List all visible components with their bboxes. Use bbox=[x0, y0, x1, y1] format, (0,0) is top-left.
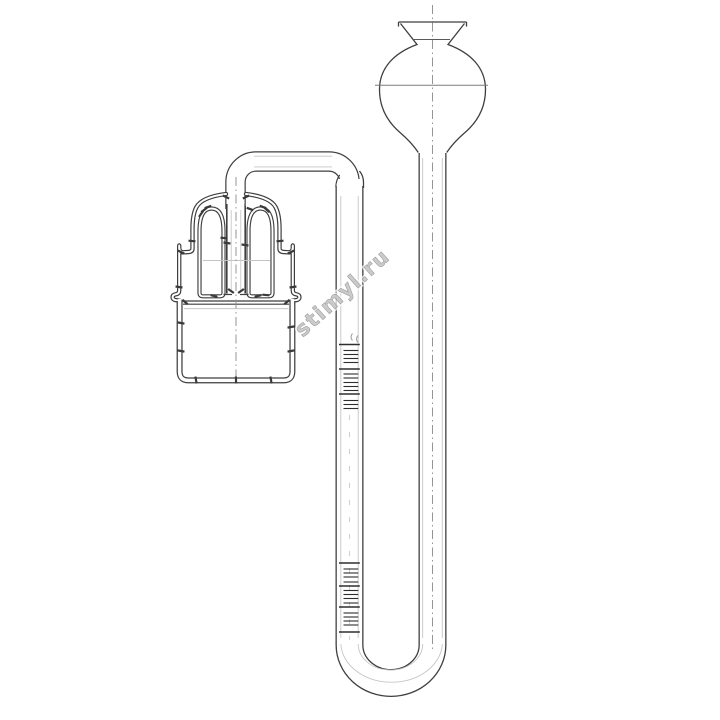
tick-mark bbox=[263, 295, 270, 296]
bulb-right-profile bbox=[447, 24, 486, 153]
tick-mark bbox=[189, 241, 196, 242]
bulb-left-profile bbox=[380, 24, 419, 153]
tick-mark bbox=[195, 377, 196, 384]
drawing-canvas: stimyl.ru stimyl.ru bbox=[0, 0, 720, 720]
tick-mark bbox=[176, 287, 183, 288]
tick-mark bbox=[288, 350, 295, 351]
u-tube-bore bbox=[350, 148, 433, 683]
tick-mark bbox=[178, 322, 185, 323]
tick-mark bbox=[224, 243, 231, 244]
glassware-technical-drawing: stimyl.ru stimyl.ru bbox=[0, 0, 720, 720]
tick-mark bbox=[221, 238, 228, 239]
connecting-tube-bore bbox=[236, 162, 350, 205]
connecting-tube bbox=[236, 162, 350, 210]
tick-mark bbox=[247, 208, 254, 210]
centerlines bbox=[236, 5, 433, 650]
leveling-bulb-funnel bbox=[375, 22, 488, 153]
tick-mark bbox=[277, 241, 284, 242]
tick-mark bbox=[270, 377, 271, 384]
tick-mark bbox=[178, 350, 185, 351]
tick-mark bbox=[290, 287, 297, 288]
tick-mark bbox=[242, 245, 249, 246]
